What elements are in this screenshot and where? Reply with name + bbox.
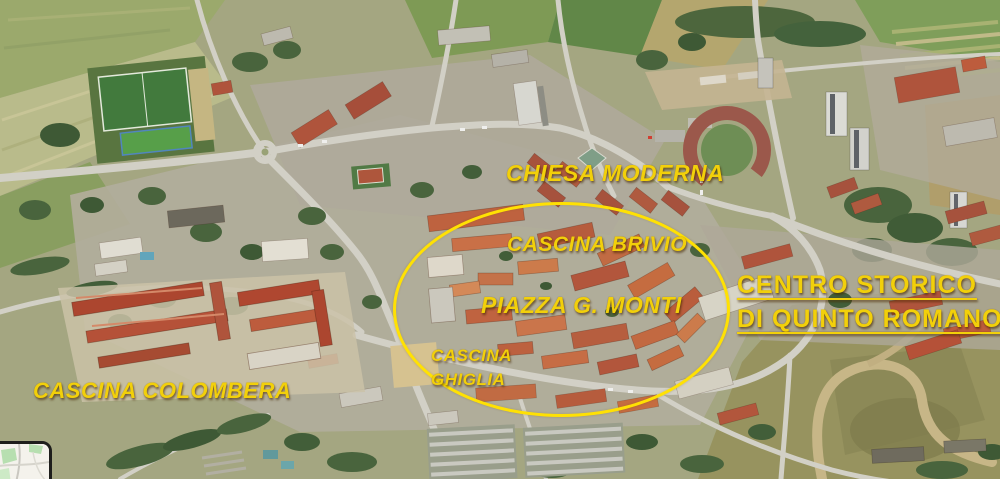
label-cascina-brivio: CASCINA BRIVIO — [507, 233, 687, 257]
label-piazza-g-monti: PIAZZA G. MONTI — [481, 292, 682, 319]
inset-map-graphic — [0, 444, 49, 479]
annotated-aerial-map: CHIESA MODERNA CASCINA BRIVIO PIAZZA G. … — [0, 0, 1000, 479]
label-cascina-ghiglia-line2: GHIGLIA — [431, 368, 512, 392]
overview-inset-map — [0, 441, 52, 479]
label-cascina-ghiglia-line1: CASCINA — [431, 344, 512, 368]
label-centro-storico: CENTRO STORICO DI QUINTO ROMANO — [737, 268, 1000, 336]
label-cascina-ghiglia: CASCINA GHIGLIA — [431, 344, 512, 392]
label-cascina-colombera: CASCINA COLOMBERA — [33, 378, 291, 404]
label-centro-storico-line2: DI QUINTO ROMANO — [737, 302, 1000, 336]
label-chiesa-moderna: CHIESA MODERNA — [506, 160, 724, 187]
aerial-imagery — [0, 0, 1000, 479]
label-centro-storico-line1: CENTRO STORICO — [737, 268, 1000, 302]
